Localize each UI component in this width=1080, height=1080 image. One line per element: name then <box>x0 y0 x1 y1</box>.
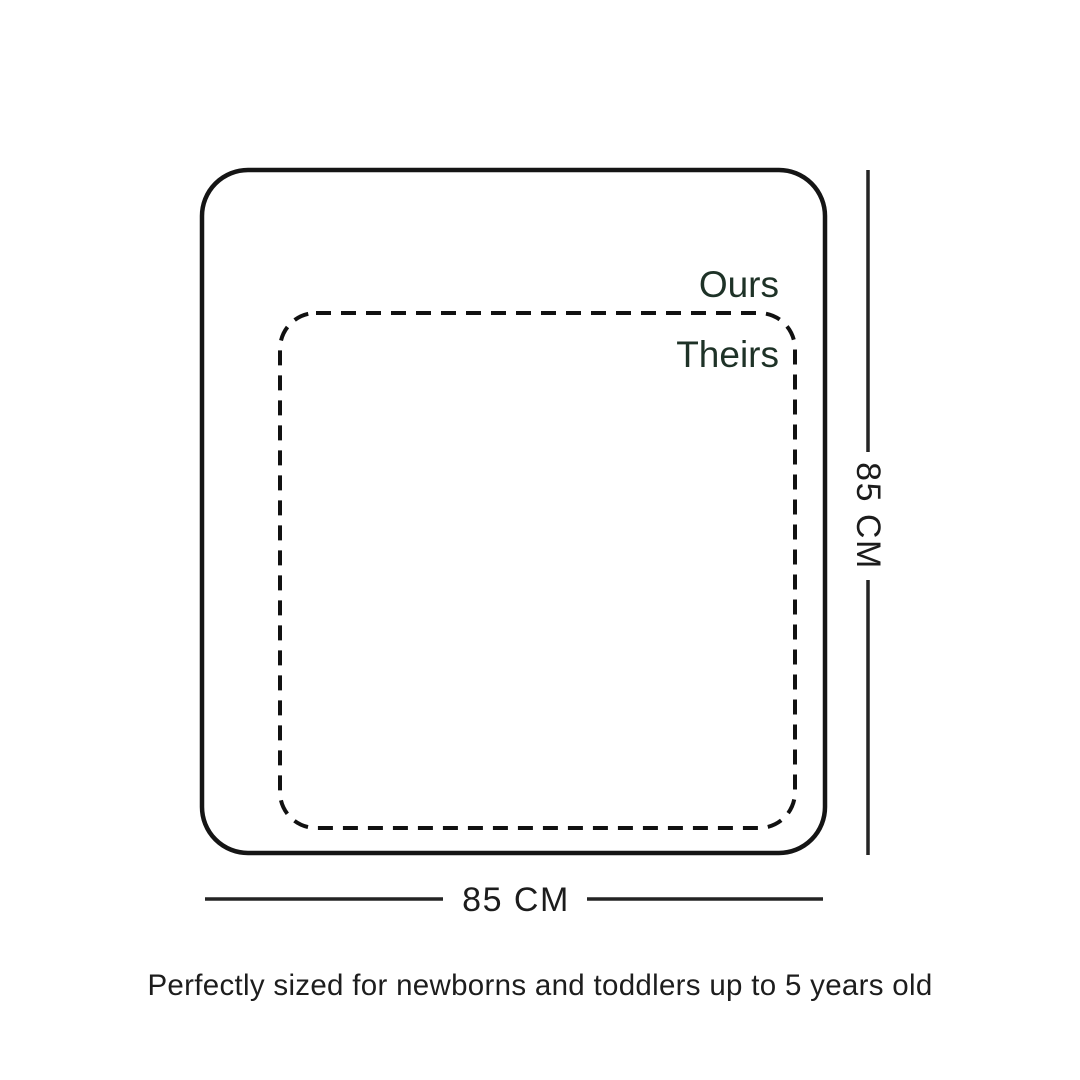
caption-text: Perfectly sized for newborns and toddler… <box>147 969 932 1002</box>
diagram-canvas: Ours Theirs 85 CM 85 CM Perfectly sized … <box>0 0 1080 1080</box>
size-comparison-infographic: Ours Theirs 85 CM 85 CM Perfectly sized … <box>0 0 1080 1080</box>
ours-label: Ours <box>699 264 779 305</box>
theirs-label: Theirs <box>676 334 779 375</box>
theirs-mat-outline <box>280 313 795 828</box>
width-dimension-label: 85 CM <box>462 881 570 919</box>
height-dimension-label: 85 CM <box>849 462 887 570</box>
